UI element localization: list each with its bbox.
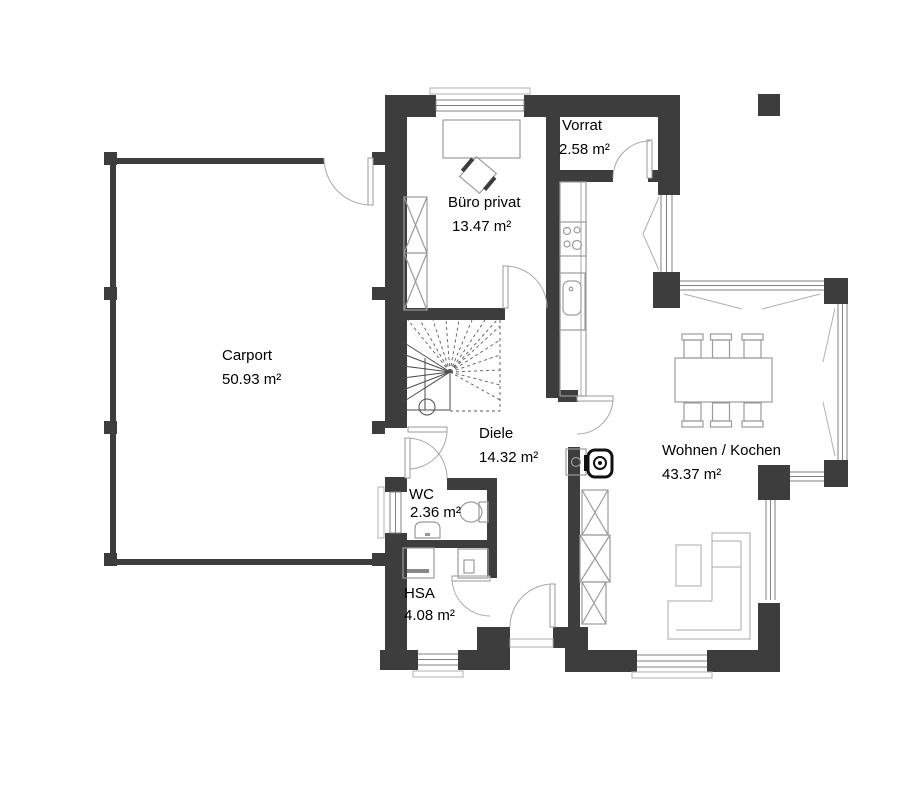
window-bay-top bbox=[680, 281, 824, 309]
label-diele-area: 14.32 m² bbox=[479, 449, 538, 466]
door-buero bbox=[503, 266, 547, 308]
dining-chair bbox=[682, 403, 703, 427]
carport-wall-top bbox=[110, 158, 324, 164]
wall-bottom-living-right bbox=[707, 650, 760, 672]
detached-marker-square bbox=[758, 94, 780, 116]
dining-chair bbox=[742, 334, 763, 358]
dining-chair bbox=[711, 334, 732, 358]
bay-corner-a bbox=[653, 272, 680, 308]
wall-vorrat-bottom bbox=[560, 170, 613, 182]
floor-plan-svg: Carport 50.93 m² Büro privat 13.47 m² Vo… bbox=[0, 0, 920, 800]
door-kitchen-wohnen bbox=[577, 396, 613, 434]
door-wc bbox=[405, 438, 447, 478]
office-chair bbox=[457, 154, 499, 195]
window-buero-top bbox=[430, 88, 530, 111]
entrance-right-l2 bbox=[565, 648, 588, 672]
window-living-bottom bbox=[632, 655, 712, 678]
window-bay-right bbox=[823, 304, 847, 460]
label-vorrat-name: Vorrat bbox=[562, 117, 603, 134]
sofa-group bbox=[668, 533, 750, 639]
dining-set bbox=[675, 334, 772, 427]
wall-left-mid bbox=[385, 477, 407, 492]
washing-machine bbox=[403, 548, 434, 578]
window-bay-step bbox=[790, 472, 824, 481]
bay-corner-d bbox=[758, 465, 790, 500]
entrance-pier bbox=[477, 627, 510, 650]
label-hsa-area: 4.08 m² bbox=[404, 607, 455, 624]
carport-wall-bottom bbox=[110, 559, 385, 565]
door-vorrat bbox=[613, 140, 652, 178]
stair-walkline-start bbox=[419, 399, 435, 415]
label-wc-name: WC bbox=[409, 486, 434, 503]
hsa-fixtures bbox=[403, 548, 488, 578]
label-wohnen-area: 43.37 m² bbox=[662, 466, 721, 483]
wall-bottom-hsa-left bbox=[380, 650, 418, 670]
door-entrance bbox=[510, 584, 555, 647]
wall-bottom-living-left bbox=[588, 650, 637, 672]
toilet-cistern bbox=[479, 502, 488, 522]
wohnen-wardrobe bbox=[580, 490, 610, 624]
staircase bbox=[403, 320, 500, 415]
wall-wc-bottom bbox=[407, 540, 497, 548]
bay-corner-b bbox=[824, 278, 848, 304]
entrance-threshold bbox=[510, 639, 553, 647]
carport-wall-left bbox=[110, 158, 116, 565]
window-kitchen-east bbox=[643, 195, 672, 272]
utility-unit bbox=[458, 549, 488, 578]
wall-top-right bbox=[524, 95, 680, 117]
window-living-right bbox=[766, 500, 775, 600]
stairs-upper-flight-dashed bbox=[408, 320, 500, 411]
label-carport-name: Carport bbox=[222, 347, 273, 364]
floor-plan-page: Carport 50.93 m² Büro privat 13.47 m² Vo… bbox=[0, 0, 920, 800]
dining-chair bbox=[742, 403, 763, 427]
dining-chair bbox=[711, 403, 732, 427]
label-buero-area: 13.47 m² bbox=[452, 218, 511, 235]
label-wohnen-name: Wohnen / Kochen bbox=[662, 442, 781, 459]
bay-corner-c bbox=[824, 460, 848, 487]
window-hsa-bottom bbox=[413, 654, 463, 677]
wall-kitchen-vertical bbox=[546, 117, 560, 398]
wall-right-lower bbox=[758, 603, 780, 672]
interior-walls bbox=[407, 117, 658, 630]
dining-chair bbox=[682, 334, 703, 358]
kitchen-furniture bbox=[560, 182, 586, 396]
label-buero-name: Büro privat bbox=[448, 194, 521, 211]
doors bbox=[405, 140, 652, 647]
dining-table bbox=[675, 358, 772, 402]
label-vorrat-area: 2.58 m² bbox=[559, 141, 610, 158]
desk bbox=[443, 120, 520, 158]
cooktop bbox=[560, 222, 586, 256]
buero-wardrobe bbox=[404, 197, 427, 310]
label-diele-name: Diele bbox=[479, 425, 513, 442]
coffee-table bbox=[676, 545, 701, 586]
entrance-right-l1 bbox=[553, 627, 588, 648]
label-wc-area: 2.36 m² bbox=[410, 504, 461, 521]
door-diele-carport bbox=[408, 427, 447, 469]
room-labels: Carport 50.93 m² Büro privat 13.47 m² Vo… bbox=[222, 117, 781, 624]
carport-gate-door bbox=[324, 158, 373, 205]
stairs-lower-flight bbox=[403, 342, 450, 415]
label-carport-area: 50.93 m² bbox=[222, 371, 281, 388]
window-wc-left bbox=[378, 487, 401, 538]
label-hsa-name: HSA bbox=[404, 585, 435, 602]
wall-right-upper bbox=[658, 117, 680, 195]
door-hsa bbox=[452, 576, 490, 616]
wall-bottom-hsa-right bbox=[458, 650, 510, 670]
